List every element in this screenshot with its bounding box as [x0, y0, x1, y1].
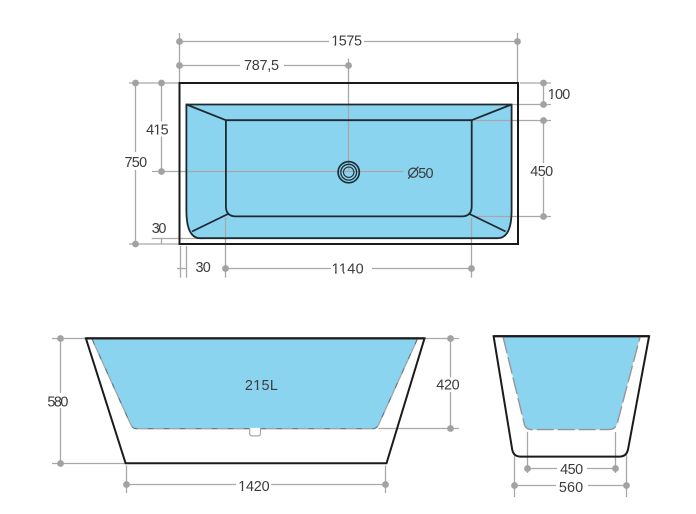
svg-text:415: 415 — [146, 122, 169, 138]
svg-text:450: 450 — [560, 462, 583, 478]
svg-text:420: 420 — [436, 377, 459, 393]
svg-text:1575: 1575 — [331, 34, 362, 50]
svg-text:30: 30 — [152, 221, 167, 237]
svg-text:580: 580 — [47, 394, 68, 410]
svg-text:787,5: 787,5 — [244, 58, 279, 74]
svg-text:750: 750 — [125, 155, 148, 171]
svg-text:1140: 1140 — [332, 261, 364, 277]
svg-text:50: 50 — [418, 166, 433, 182]
svg-text:100: 100 — [548, 87, 571, 103]
svg-text:450: 450 — [530, 164, 553, 180]
svg-text:560: 560 — [559, 480, 583, 496]
svg-text:30: 30 — [195, 260, 210, 276]
svg-text:215L: 215L — [245, 378, 278, 394]
svg-text:1420: 1420 — [238, 479, 269, 495]
